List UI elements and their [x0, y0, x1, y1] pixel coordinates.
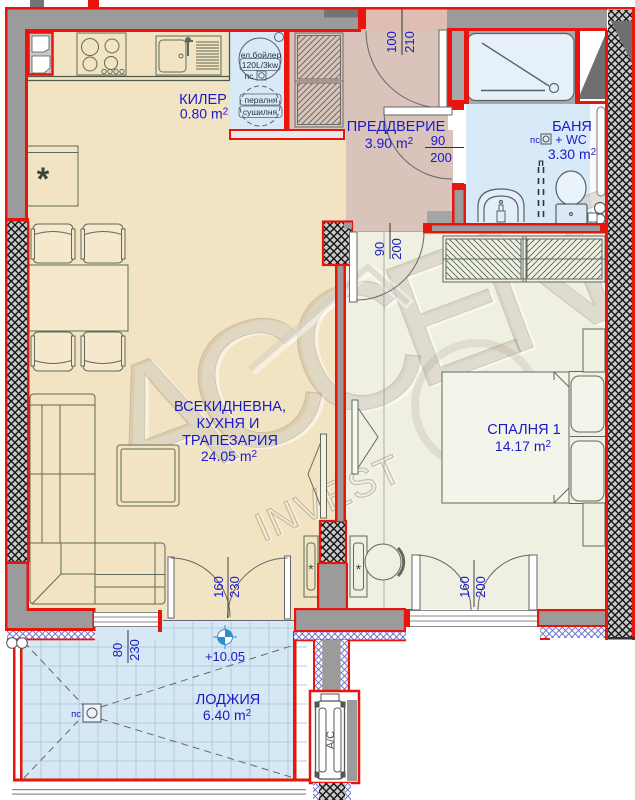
svg-text:*: * [37, 161, 50, 197]
svg-text:120L/3kw: 120L/3kw [242, 60, 279, 70]
svg-text:пс: пс [71, 709, 81, 720]
svg-text:+10.05: +10.05 [205, 649, 245, 664]
svg-text:3.90 m2: 3.90 m2 [365, 135, 414, 151]
svg-text:200: 200 [389, 238, 404, 260]
svg-text:14.17 m2: 14.17 m2 [495, 438, 552, 454]
svg-text:200: 200 [473, 576, 488, 598]
svg-text:+ WC: + WC [555, 133, 587, 147]
svg-text:90: 90 [372, 242, 387, 256]
svg-text:ВСЕКИДНЕВНА,: ВСЕКИДНЕВНА, [174, 399, 286, 415]
svg-text:A/C: A/C [325, 731, 337, 749]
svg-text:СПАЛНЯ 1: СПАЛНЯ 1 [487, 422, 560, 438]
svg-text:0.80 m2: 0.80 m2 [180, 106, 229, 122]
svg-text:3.30 m2: 3.30 m2 [548, 146, 597, 162]
svg-text:90: 90 [431, 133, 445, 148]
svg-text:*: * [308, 561, 314, 577]
svg-text:100: 100 [384, 31, 399, 53]
svg-text:230: 230 [127, 639, 142, 661]
svg-text:пс: пс [245, 71, 255, 81]
svg-text:пс: пс [530, 135, 540, 146]
svg-text:230: 230 [227, 576, 242, 598]
svg-text:ЛОДЖИЯ: ЛОДЖИЯ [196, 692, 261, 708]
svg-text:24.05 m2: 24.05 m2 [201, 448, 258, 464]
svg-text:160: 160 [211, 576, 226, 598]
svg-text:6.40 m2: 6.40 m2 [203, 707, 252, 723]
svg-text:80: 80 [110, 643, 125, 657]
svg-text:КУХНЯ И: КУХНЯ И [197, 416, 260, 432]
svg-text:сушилня: сушилня [243, 107, 278, 117]
svg-text:210: 210 [402, 31, 417, 53]
svg-text:ТРАПЕЗАРИЯ: ТРАПЕЗАРИЯ [182, 433, 278, 449]
svg-text:*: * [356, 561, 362, 577]
svg-text:пералня: пералня [244, 95, 277, 105]
svg-text:200: 200 [430, 150, 452, 165]
svg-text:160: 160 [457, 576, 472, 598]
svg-text:п: п [538, 158, 544, 169]
